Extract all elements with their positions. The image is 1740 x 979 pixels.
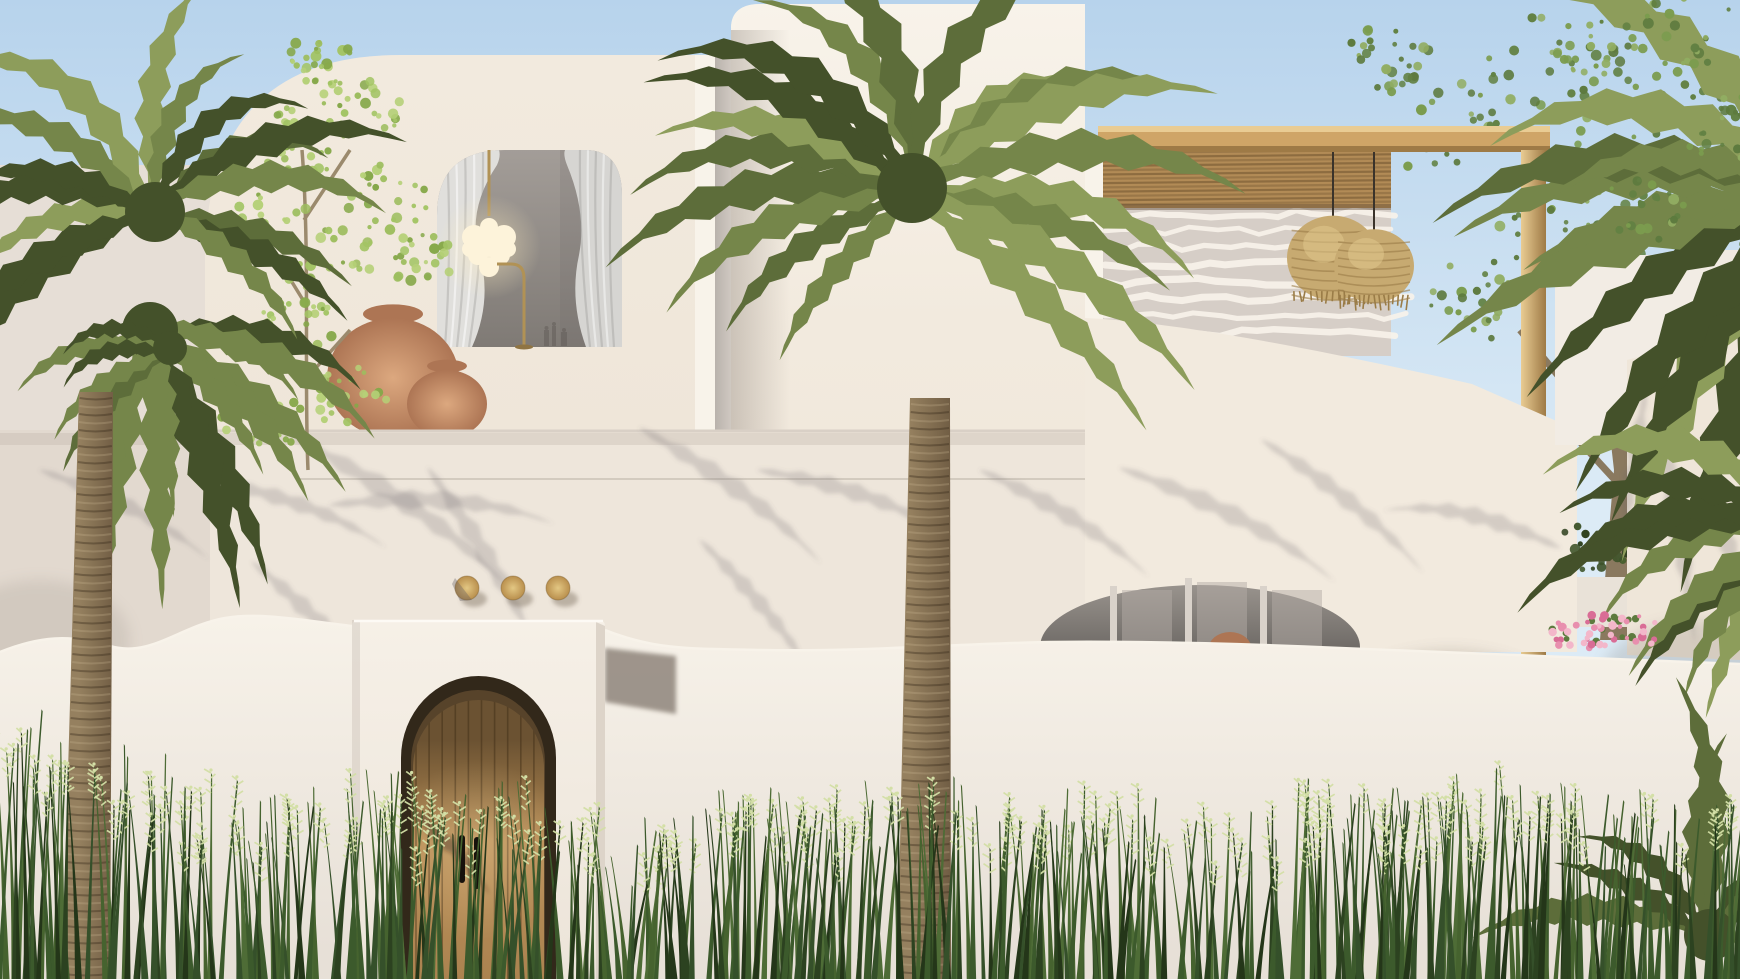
flower xyxy=(1587,611,1596,620)
flower xyxy=(1556,620,1561,625)
flower xyxy=(1588,640,1596,648)
flower xyxy=(1652,620,1657,625)
flower xyxy=(1602,642,1608,648)
flower xyxy=(1564,628,1572,636)
chandelier-bulb xyxy=(479,257,499,277)
flower xyxy=(1624,619,1630,625)
flower xyxy=(1566,641,1574,649)
flower xyxy=(1591,624,1598,631)
flower xyxy=(1608,632,1614,638)
flower xyxy=(1585,635,1590,640)
flower xyxy=(1618,624,1623,629)
gold-disc xyxy=(546,576,570,600)
flower xyxy=(1637,614,1641,618)
gold-wall-discs xyxy=(452,576,578,607)
render-canvas xyxy=(0,0,1740,979)
terracotta-pot xyxy=(407,370,487,438)
villa-exterior-render xyxy=(0,0,1740,979)
flower xyxy=(1555,641,1563,649)
flower xyxy=(1573,622,1580,629)
chandelier-bulb xyxy=(462,241,478,257)
flower xyxy=(1625,636,1629,640)
flower xyxy=(1632,638,1639,645)
flower xyxy=(1640,628,1647,635)
flower xyxy=(1648,640,1654,646)
chandelier-bulb xyxy=(500,241,516,257)
flower xyxy=(1581,640,1588,647)
flower xyxy=(1608,621,1617,630)
flower xyxy=(1585,620,1590,625)
gold-disc xyxy=(501,576,525,600)
flower xyxy=(1599,615,1606,622)
flower xyxy=(1548,628,1556,636)
